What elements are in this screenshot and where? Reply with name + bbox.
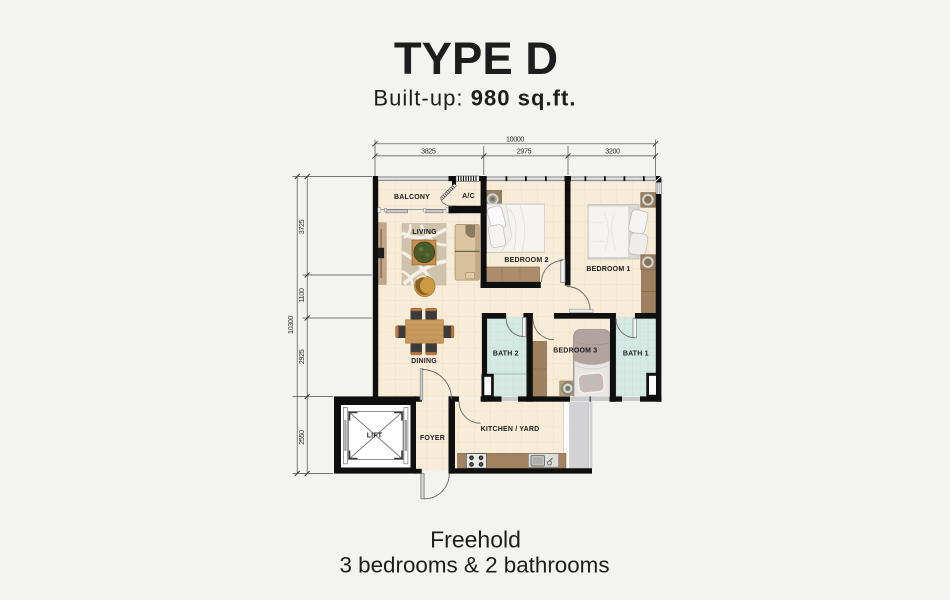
svg-text:A/C: A/C bbox=[462, 193, 475, 200]
svg-text:3 bedrooms & 2 bathrooms: 3 bedrooms & 2 bathrooms bbox=[339, 553, 609, 578]
svg-text:BATH 2: BATH 2 bbox=[493, 351, 519, 358]
svg-text:Built-up: 980 sq.ft.: Built-up: 980 sq.ft. bbox=[373, 86, 576, 111]
svg-text:KITCHEN / YARD: KITCHEN / YARD bbox=[481, 426, 540, 433]
svg-text:BEDROOM 2: BEDROOM 2 bbox=[504, 257, 548, 264]
svg-text:1100: 1100 bbox=[297, 288, 306, 302]
svg-text:BALCONY: BALCONY bbox=[394, 194, 430, 201]
svg-text:10300: 10300 bbox=[286, 316, 295, 334]
svg-text:BEDROOM 1: BEDROOM 1 bbox=[586, 266, 630, 273]
svg-text:LIVING: LIVING bbox=[412, 229, 437, 236]
svg-text:2925: 2925 bbox=[297, 349, 306, 364]
svg-text:TYPE D: TYPE D bbox=[394, 33, 558, 84]
svg-text:3825: 3825 bbox=[421, 147, 436, 156]
svg-text:Freehold: Freehold bbox=[430, 526, 521, 552]
svg-text:10000: 10000 bbox=[506, 134, 524, 143]
svg-text:3725: 3725 bbox=[297, 219, 306, 234]
svg-text:BEDROOM 3: BEDROOM 3 bbox=[553, 348, 597, 355]
svg-text:2975: 2975 bbox=[517, 147, 532, 156]
svg-text:FOYER: FOYER bbox=[420, 435, 445, 442]
svg-text:3200: 3200 bbox=[605, 147, 620, 156]
svg-text:2550: 2550 bbox=[297, 430, 306, 445]
svg-text:BATH 1: BATH 1 bbox=[623, 351, 649, 358]
svg-text:LIFT: LIFT bbox=[367, 433, 383, 440]
svg-text:DINING: DINING bbox=[411, 358, 437, 365]
